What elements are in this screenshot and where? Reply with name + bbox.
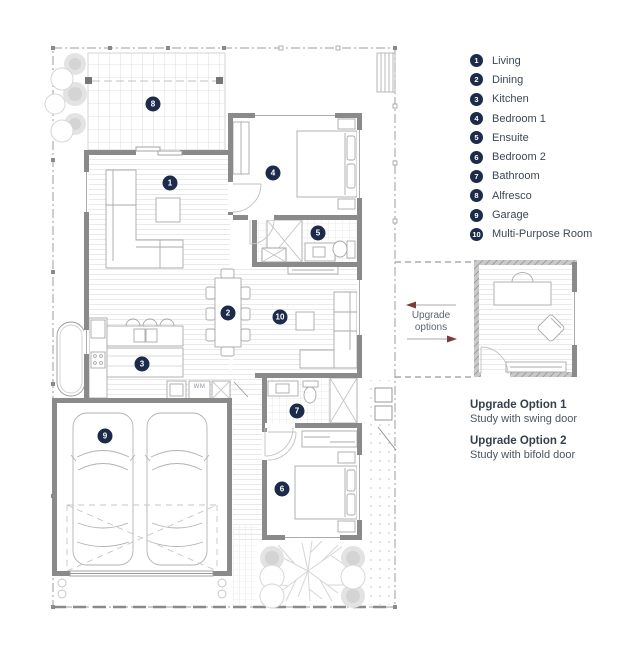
bedroom-1-door (233, 184, 261, 212)
legend-item-bathroom: 7 Bathroom (470, 167, 592, 186)
upgrade-option-2-title: Upgrade Option 2 (470, 435, 577, 447)
upgrade-arrow-left (406, 302, 416, 309)
bedroom-1-furniture (233, 119, 357, 209)
upgrade-arrow-right (447, 336, 457, 343)
washing-machine-label: WM (189, 384, 210, 390)
room-marker-ensuite: 5 (311, 226, 326, 241)
legend-number-badge: 4 (470, 112, 483, 125)
legend-label: Ensuite (492, 132, 529, 144)
water-tank (57, 322, 85, 396)
driveway-markers (58, 579, 226, 598)
living-coffee-table (156, 198, 180, 222)
room-marker-dining: 2 (221, 306, 236, 321)
upgrade-options-text: Upgrade Option 1 Study with swing door U… (470, 399, 577, 471)
legend-label: Living (492, 55, 521, 67)
room-marker-multi-purpose-room: 10 (273, 310, 288, 325)
legend-number-badge: 9 (470, 209, 483, 222)
legend-number-badge: 2 (470, 73, 483, 86)
legend-number-badge: 5 (470, 131, 483, 144)
legend-number-badge: 1 (470, 54, 483, 67)
study-upgrade-room (474, 260, 577, 377)
legend-item-dining: 2 Dining (470, 70, 592, 89)
floor-plan-page: 1 Living 2 Dining 3 Kitchen 4 Bedroom 1 … (0, 0, 630, 650)
legend-label: Garage (492, 209, 529, 221)
legend-label: Kitchen (492, 93, 529, 105)
legend-item-bedroom-2: 6 Bedroom 2 (470, 147, 592, 166)
garden-bottom (260, 541, 365, 608)
room-marker-bedroom-2: 6 (275, 482, 290, 497)
legend-label: Bedroom 2 (492, 151, 546, 163)
legend-label: Bathroom (492, 170, 540, 182)
upgrade-option-1-title: Upgrade Option 1 (470, 399, 577, 411)
legend-item-ensuite: 5 Ensuite (470, 128, 592, 147)
garage-door (70, 571, 213, 576)
legend-item-alfresco: 8 Alfresco (470, 186, 592, 205)
garden-top-left (45, 53, 87, 142)
garden-bed-strip (377, 53, 395, 92)
room-marker-bathroom: 7 (290, 404, 305, 419)
legend-number-badge: 3 (470, 93, 483, 106)
legend-label: Dining (492, 74, 523, 86)
legend-item-living: 1 Living (470, 51, 592, 70)
legend-item-bedroom-1: 4 Bedroom 1 (470, 109, 592, 128)
legend-label: Multi-Purpose Room (492, 228, 592, 240)
legend-label: Alfresco (492, 190, 532, 202)
upgrade-options-label: Upgrade options (403, 310, 459, 334)
upgrade-option-2-desc: Study with bifold door (470, 449, 577, 461)
garage-cars (67, 413, 217, 571)
legend-label: Bedroom 1 (492, 113, 546, 125)
room-marker-alfresco: 8 (146, 97, 161, 112)
study-desk (494, 282, 551, 305)
room-marker-living: 1 (163, 176, 178, 191)
legend-number-badge: 6 (470, 151, 483, 164)
legend-number-badge: 8 (470, 189, 483, 202)
upgrade-option-1: Upgrade Option 1 Study with swing door (470, 399, 577, 425)
legend: 1 Living 2 Dining 3 Kitchen 4 Bedroom 1 … (470, 51, 592, 244)
upgrade-options-label-line1: Upgrade (403, 310, 459, 322)
upgrade-option-1-desc: Study with swing door (470, 413, 577, 425)
linen-closet (262, 248, 286, 262)
legend-item-multi-purpose-room: 10 Multi-Purpose Room (470, 225, 592, 244)
legend-item-garage: 9 Garage (470, 205, 592, 224)
room-marker-garage: 9 (98, 429, 113, 444)
upgrade-options-label-line2: options (403, 322, 459, 334)
legend-number-badge: 10 (470, 228, 483, 241)
room-marker-bedroom-1: 4 (266, 166, 281, 181)
legend-number-badge: 7 (470, 170, 483, 183)
room-marker-kitchen: 3 (135, 357, 150, 372)
bedroom-2-furniture (295, 431, 357, 532)
legend-item-kitchen: 3 Kitchen (470, 90, 592, 109)
upgrade-option-2: Upgrade Option 2 Study with bifold door (470, 435, 577, 461)
